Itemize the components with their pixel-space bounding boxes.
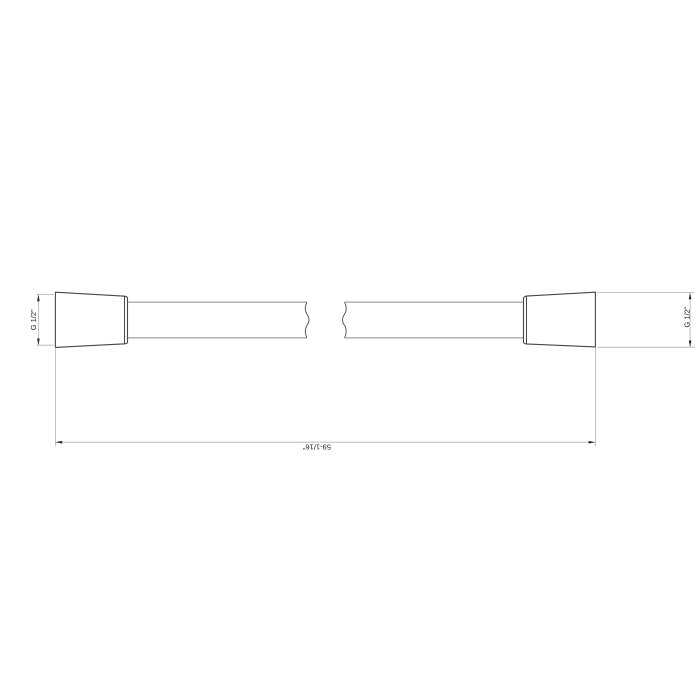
svg-text:G 1/2": G 1/2" (682, 306, 691, 327)
svg-text:59-1/16": 59-1/16" (303, 442, 331, 451)
svg-text:G 1/2": G 1/2" (29, 309, 38, 330)
